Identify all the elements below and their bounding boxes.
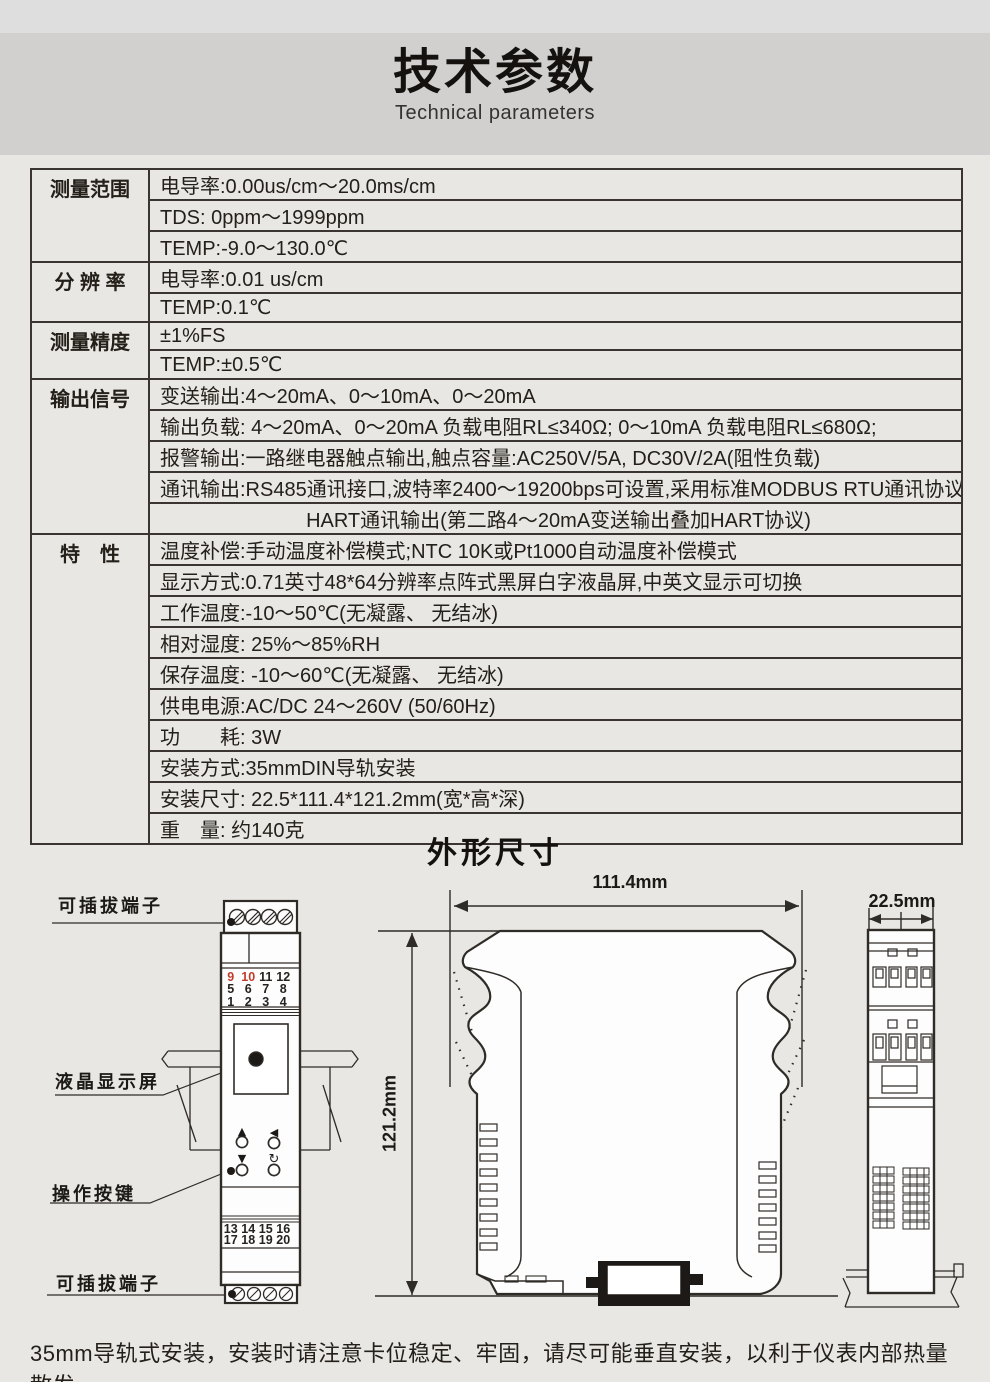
terminal-grid-top: 910111256781234 [222, 971, 292, 1008]
label-buttons: 操作按键 [52, 1180, 136, 1206]
spec-row: 特 性温度补偿:手动温度补偿模式;NTC 10K或Pt1000自动温度补偿模式 [31, 534, 962, 565]
spec-row: 安装尺寸: 22.5*111.4*121.2mm(宽*高*深) [31, 782, 962, 813]
spec-value: TEMP:-9.0～130.0℃ [149, 231, 962, 262]
spec-value: 电导率:0.01 us/cm [149, 262, 962, 293]
spec-value: 工作温度:-10～50℃(无凝露、 无结冰) [149, 596, 962, 627]
spec-group-label: 测量精度 [31, 322, 149, 379]
spec-group-label: 输出信号 [31, 379, 149, 534]
terminal-number: 5 [222, 983, 240, 995]
top-strip [0, 0, 990, 33]
spec-group-label: 特 性 [31, 534, 149, 844]
terminal-number: 4 [275, 996, 293, 1008]
dimension-drawings: ▲ ▼ ◀ ↻ [0, 860, 990, 1330]
spec-value: 相对湿度: 25%～85%RH [149, 627, 962, 658]
terminal-number: 2 [240, 996, 258, 1008]
spec-row: 输出信号变送输出:4～20mA、0～10mA、0～20mA [31, 379, 962, 410]
terminal-number: 8 [275, 983, 293, 995]
rotate-arrow-icon: ↻ [269, 1152, 280, 1167]
mounting-note: 35mm导轨式安装，安装时请注意卡位稳定、牢固，请尽可能垂直安装，以利于仪表内部… [30, 1336, 970, 1382]
spec-value: 输出负载: 4～20mA、0～20mA 负载电阻RL≤340Ω; 0～10mA … [149, 410, 962, 441]
spec-row: 工作温度:-10～50℃(无凝露、 无结冰) [31, 596, 962, 627]
terminal-number: 19 [257, 1235, 275, 1246]
label-top-terminal: 可插拔端子 [58, 892, 163, 918]
spec-value: TEMP:±0.5℃ [149, 350, 962, 379]
spec-row: 安装方式:35mmDIN导轨安装 [31, 751, 962, 782]
page-subtitle: Technical parameters [0, 102, 990, 125]
spec-row: 输出负载: 4～20mA、0～20mA 负载电阻RL≤340Ω; 0～10mA … [31, 410, 962, 441]
terminal-number: 18 [240, 1235, 258, 1246]
spec-row: 分 辨 率电导率:0.01 us/cm [31, 262, 962, 293]
up-arrow-icon: ▲ [238, 1125, 247, 1138]
spec-row: TDS: 0ppm～1999ppm [31, 200, 962, 231]
spec-value: 安装方式:35mmDIN导轨安装 [149, 751, 962, 782]
spec-row: 测量范围电导率:0.00us/cm～20.0ms/cm [31, 169, 962, 200]
spec-row: HART通讯输出(第二路4～20mA变送输出叠加HART协议) [31, 503, 962, 534]
height-dimension-label: 121.2mm [380, 1044, 401, 1184]
spec-row: TEMP:-9.0～130.0℃ [31, 231, 962, 262]
spec-row: TEMP:0.1℃ [31, 293, 962, 322]
depth-dimension-label: 22.5mm [862, 891, 942, 912]
spec-value: TDS: 0ppm～1999ppm [149, 200, 962, 231]
spec-value: TEMP:0.1℃ [149, 293, 962, 322]
header-band: 技术参数 Technical parameters [0, 33, 990, 155]
dimension-drawings-svg: ▲ ▼ ◀ ↻ [0, 860, 990, 1330]
label-lcd: 液晶显示屏 [55, 1068, 160, 1094]
spec-value: 供电电源:AC/DC 24～260V (50/60Hz) [149, 689, 962, 720]
spec-value: 显示方式:0.71英寸48*64分辨率点阵式黑屏白字液晶屏,中英文显示可切换 [149, 565, 962, 596]
label-bottom-terminal: 可插拔端子 [56, 1270, 161, 1296]
left-arrow-icon: ◀ [270, 1126, 279, 1139]
terminal-grid-bottom: 1314151617181920 [222, 1224, 292, 1246]
spec-row: 供电电源:AC/DC 24～260V (50/60Hz) [31, 689, 962, 720]
spec-table: 测量范围电导率:0.00us/cm～20.0ms/cmTDS: 0ppm～199… [30, 168, 963, 845]
spec-row: 报警输出:一路继电器触点输出,触点容量:AC250V/5A, DC30V/2A(… [31, 441, 962, 472]
spec-table-body: 测量范围电导率:0.00us/cm～20.0ms/cmTDS: 0ppm～199… [31, 169, 962, 844]
terminal-number: 6 [240, 983, 258, 995]
tech-spec-sheet: 技术参数 Technical parameters 测量范围电导率:0.00us… [0, 0, 990, 1382]
terminal-number: 3 [257, 996, 275, 1008]
page-title: 技术参数 [0, 33, 990, 100]
spec-row: 显示方式:0.71英寸48*64分辨率点阵式黑屏白字液晶屏,中英文显示可切换 [31, 565, 962, 596]
spec-value: 通讯输出:RS485通讯接口,波特率2400～19200bps可设置,采用标准M… [149, 472, 962, 503]
spec-value: 电导率:0.00us/cm～20.0ms/cm [149, 169, 962, 200]
spec-value: 变送输出:4～20mA、0～10mA、0～20mA [149, 379, 962, 410]
spec-row: 相对湿度: 25%～85%RH [31, 627, 962, 658]
spec-row: 通讯输出:RS485通讯接口,波特率2400～19200bps可设置,采用标准M… [31, 472, 962, 503]
terminal-number: 17 [222, 1235, 240, 1246]
spec-value: 温度补偿:手动温度补偿模式;NTC 10K或Pt1000自动温度补偿模式 [149, 534, 962, 565]
spec-value: 保存温度: -10～60℃(无凝露、 无结冰) [149, 658, 962, 689]
width-dimension-label: 111.4mm [560, 872, 700, 893]
spec-value: 功 耗: 3W [149, 720, 962, 751]
spec-value: HART通讯输出(第二路4～20mA变送输出叠加HART协议) [149, 503, 962, 534]
spec-group-label: 分 辨 率 [31, 262, 149, 322]
spec-row: TEMP:±0.5℃ [31, 350, 962, 379]
terminal-number: 20 [275, 1235, 293, 1246]
spec-row: 测量精度±1%FS [31, 322, 962, 351]
down-arrow-icon: ▼ [238, 1152, 247, 1165]
terminal-number: 7 [257, 983, 275, 995]
spec-value: ±1%FS [149, 322, 962, 351]
spec-group-label: 测量范围 [31, 169, 149, 262]
terminal-number: 1 [222, 996, 240, 1008]
spec-row: 保存温度: -10～60℃(无凝露、 无结冰) [31, 658, 962, 689]
spec-row: 功 耗: 3W [31, 720, 962, 751]
spec-value: 报警输出:一路继电器触点输出,触点容量:AC250V/5A, DC30V/2A(… [149, 441, 962, 472]
spec-value: 安装尺寸: 22.5*111.4*121.2mm(宽*高*深) [149, 782, 962, 813]
